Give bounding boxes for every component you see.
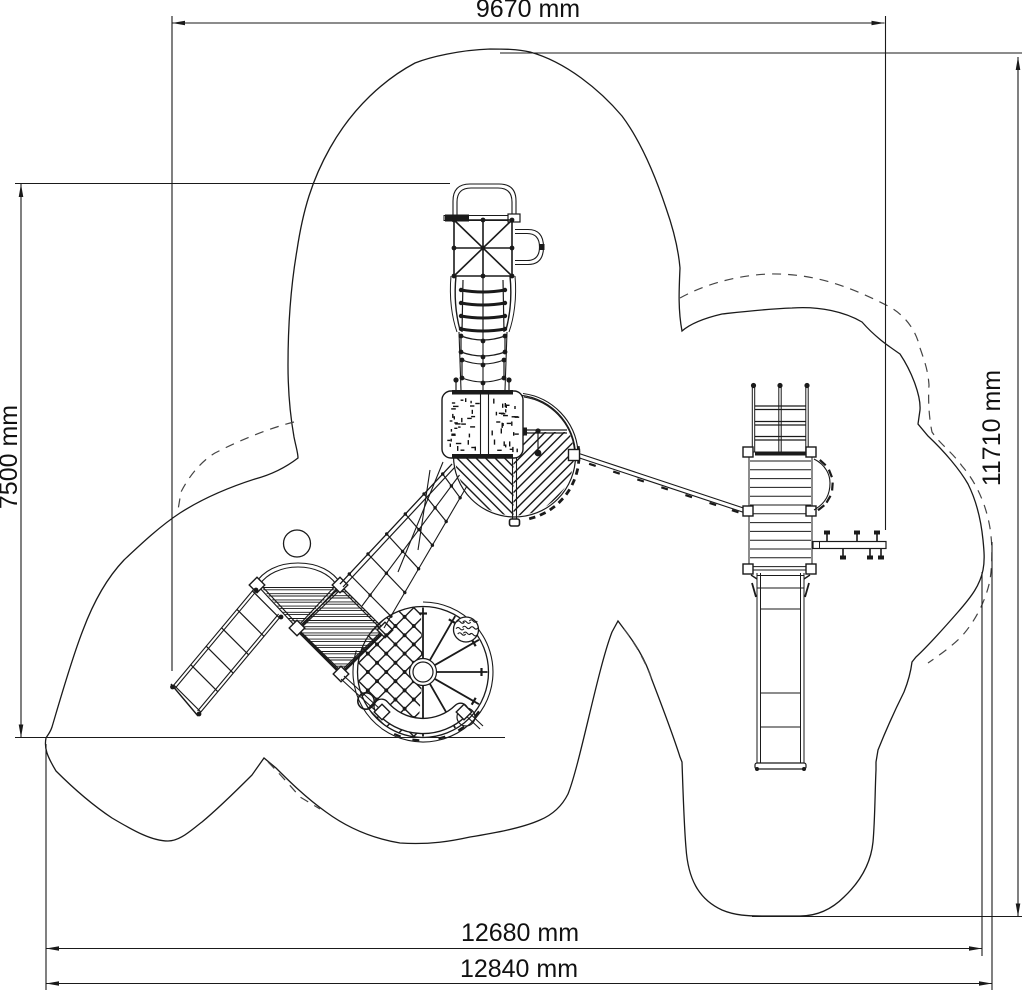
svg-text:12680 mm: 12680 mm: [461, 919, 579, 947]
svg-text:9670 mm: 9670 mm: [476, 0, 580, 23]
svg-text:11710 mm: 11710 mm: [978, 370, 1006, 486]
svg-text:12840 mm: 12840 mm: [460, 955, 578, 983]
svg-text:7500 mm: 7500 mm: [0, 405, 23, 509]
